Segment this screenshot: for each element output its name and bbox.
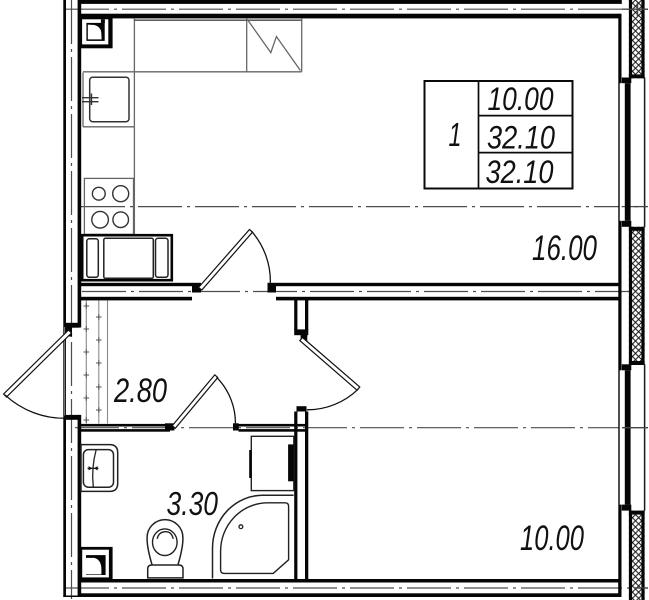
svg-text:1: 1: [449, 116, 462, 153]
svg-text:10.00: 10.00: [520, 519, 584, 558]
svg-text:10.00: 10.00: [488, 81, 554, 117]
svg-text:32.10: 32.10: [487, 120, 555, 156]
svg-text:32.10: 32.10: [486, 154, 554, 190]
svg-text:3.30: 3.30: [167, 485, 219, 522]
svg-text:16.00: 16.00: [532, 229, 597, 268]
svg-text:2.80: 2.80: [113, 372, 167, 410]
